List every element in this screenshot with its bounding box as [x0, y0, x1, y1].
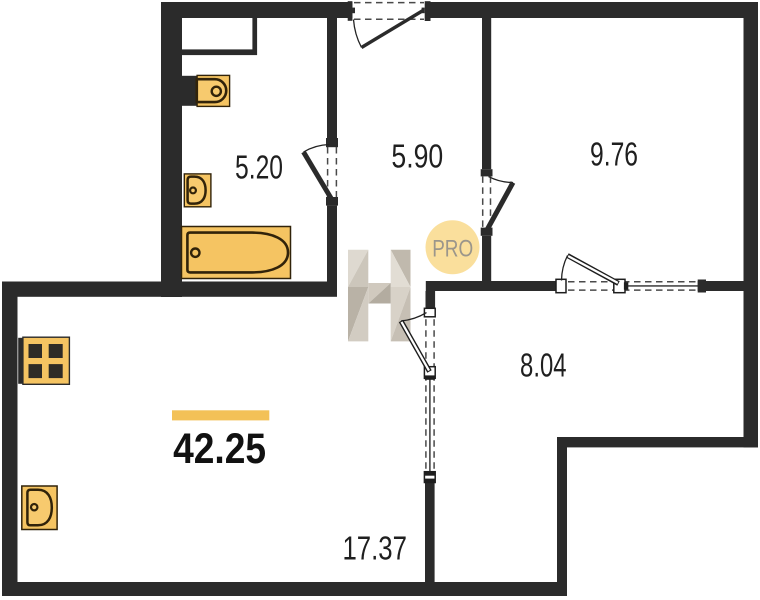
svg-text:9.76: 9.76	[590, 136, 638, 173]
svg-text:17.37: 17.37	[342, 530, 407, 567]
svg-text:PRO: PRO	[432, 235, 473, 262]
svg-text:8.04: 8.04	[520, 347, 567, 384]
svg-text:5.20: 5.20	[235, 148, 283, 185]
svg-text:42.25: 42.25	[173, 425, 266, 473]
svg-text:5.90: 5.90	[391, 138, 443, 175]
